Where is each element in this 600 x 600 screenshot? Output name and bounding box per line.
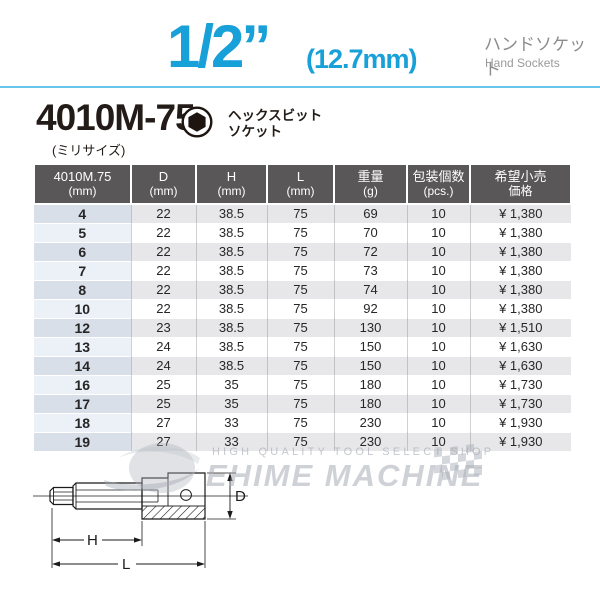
column-header: H(mm) — [196, 164, 267, 204]
size-cell: 5 — [34, 223, 131, 242]
spec-cell: 230 — [334, 432, 407, 451]
drive-size-mm: (12.7mm) — [306, 44, 417, 75]
spec-cell: 10 — [407, 375, 470, 394]
spec-cell: 69 — [334, 204, 407, 223]
spec-cell: 27 — [131, 432, 196, 451]
drive-size-heading: 1/2” — [167, 12, 268, 81]
spec-cell: 10 — [407, 299, 470, 318]
spec-cell: 38.5 — [196, 242, 267, 261]
spec-cell: ¥ 1,930 — [470, 432, 571, 451]
spec-cell: 10 — [407, 356, 470, 375]
spec-cell: 38.5 — [196, 261, 267, 280]
size-cell: 17 — [34, 394, 131, 413]
spec-cell: 75 — [267, 375, 334, 394]
dim-label-d: D — [235, 488, 246, 505]
table-row: 82238.5757410¥ 1,380 — [34, 280, 571, 299]
spec-cell: 38.5 — [196, 204, 267, 223]
spec-cell: 92 — [334, 299, 407, 318]
spec-table-header-row: 4010M.75(mm)D(mm)H(mm)L(mm)重量(g)包装個数(pcs… — [34, 164, 571, 204]
table-row: 102238.5759210¥ 1,380 — [34, 299, 571, 318]
column-header: 包装個数(pcs.) — [407, 164, 470, 204]
spec-cell: ¥ 1,730 — [470, 375, 571, 394]
spec-cell: ¥ 1,380 — [470, 242, 571, 261]
dim-label-h: H — [87, 532, 98, 549]
size-cell: 16 — [34, 375, 131, 394]
spec-cell: ¥ 1,510 — [470, 318, 571, 337]
spec-cell: 150 — [334, 356, 407, 375]
dimension-drawing: D H L — [30, 462, 265, 592]
size-cell: 13 — [34, 337, 131, 356]
size-cell: 6 — [34, 242, 131, 261]
spec-cell: ¥ 1,630 — [470, 337, 571, 356]
spec-cell: 35 — [196, 394, 267, 413]
spec-cell: 180 — [334, 375, 407, 394]
spec-cell: 75 — [267, 394, 334, 413]
spec-cell: 10 — [407, 280, 470, 299]
table-row: 52238.5757010¥ 1,380 — [34, 223, 571, 242]
spec-cell: 38.5 — [196, 299, 267, 318]
spec-cell: 25 — [131, 394, 196, 413]
spec-cell: ¥ 1,930 — [470, 413, 571, 432]
table-row: 1927337523010¥ 1,930 — [34, 432, 571, 451]
table-row: 72238.5757310¥ 1,380 — [34, 261, 571, 280]
spec-cell: ¥ 1,380 — [470, 299, 571, 318]
spec-cell: 22 — [131, 223, 196, 242]
size-cell: 19 — [34, 432, 131, 451]
column-header: 4010M.75(mm) — [34, 164, 131, 204]
spec-cell: 75 — [267, 318, 334, 337]
model-number: 4010M-75 — [36, 97, 195, 139]
spec-cell: 75 — [267, 432, 334, 451]
spec-cell: 72 — [334, 242, 407, 261]
spec-cell: 24 — [131, 337, 196, 356]
spec-cell: 33 — [196, 413, 267, 432]
size-cell: 4 — [34, 204, 131, 223]
spec-cell: 27 — [131, 413, 196, 432]
spec-cell: 10 — [407, 242, 470, 261]
header-divider — [0, 86, 600, 88]
table-row: 1725357518010¥ 1,730 — [34, 394, 571, 413]
product-type-line2: ソケット — [228, 124, 322, 140]
spec-cell: ¥ 1,380 — [470, 204, 571, 223]
spec-table: 4010M.75(mm)D(mm)H(mm)L(mm)重量(g)包装個数(pcs… — [33, 163, 572, 451]
model-size-note: (ミリサイズ) — [52, 140, 125, 159]
spec-cell: 25 — [131, 375, 196, 394]
column-header: 重量(g) — [334, 164, 407, 204]
spec-cell: 35 — [196, 375, 267, 394]
spec-cell: 10 — [407, 337, 470, 356]
table-row: 62238.5757210¥ 1,380 — [34, 242, 571, 261]
spec-cell: 74 — [334, 280, 407, 299]
category-title-jp: ハンドソケット — [484, 30, 600, 80]
spec-cell: ¥ 1,380 — [470, 261, 571, 280]
spec-cell: 150 — [334, 337, 407, 356]
spec-cell: 10 — [407, 223, 470, 242]
spec-cell: 75 — [267, 261, 334, 280]
spec-cell: 22 — [131, 261, 196, 280]
spec-cell: ¥ 1,380 — [470, 223, 571, 242]
spec-cell: 22 — [131, 280, 196, 299]
spec-cell: ¥ 1,380 — [470, 280, 571, 299]
spec-cell: 22 — [131, 204, 196, 223]
column-header: D(mm) — [131, 164, 196, 204]
spec-cell: 38.5 — [196, 337, 267, 356]
table-row: 132438.57515010¥ 1,630 — [34, 337, 571, 356]
size-cell: 10 — [34, 299, 131, 318]
spec-cell: 38.5 — [196, 280, 267, 299]
spec-cell: ¥ 1,630 — [470, 356, 571, 375]
spec-cell: 38.5 — [196, 318, 267, 337]
size-cell: 14 — [34, 356, 131, 375]
size-cell: 18 — [34, 413, 131, 432]
table-row: 1625357518010¥ 1,730 — [34, 375, 571, 394]
spec-cell: 10 — [407, 318, 470, 337]
spec-cell: 10 — [407, 261, 470, 280]
spec-cell: 75 — [267, 413, 334, 432]
spec-cell: 73 — [334, 261, 407, 280]
spec-cell: 180 — [334, 394, 407, 413]
spec-cell: 75 — [267, 280, 334, 299]
spec-cell: 22 — [131, 299, 196, 318]
size-cell: 7 — [34, 261, 131, 280]
spec-cell: 38.5 — [196, 356, 267, 375]
spec-cell: 75 — [267, 356, 334, 375]
spec-cell: 10 — [407, 413, 470, 432]
spec-cell: 24 — [131, 356, 196, 375]
table-row: 1827337523010¥ 1,930 — [34, 413, 571, 432]
spec-cell: 38.5 — [196, 223, 267, 242]
spec-cell: 75 — [267, 337, 334, 356]
spec-cell: 230 — [334, 413, 407, 432]
spec-cell: ¥ 1,730 — [470, 394, 571, 413]
product-type-line1: ヘックスビット — [228, 108, 322, 124]
spec-cell: 23 — [131, 318, 196, 337]
spec-table-body: 42238.5756910¥ 1,38052238.5757010¥ 1,380… — [34, 204, 571, 451]
spec-cell: 22 — [131, 242, 196, 261]
hex-bit-icon — [181, 106, 213, 138]
size-cell: 8 — [34, 280, 131, 299]
category-title-en: Hand Sockets — [485, 56, 560, 70]
spec-cell: 10 — [407, 204, 470, 223]
spec-cell: 33 — [196, 432, 267, 451]
spec-cell: 75 — [267, 223, 334, 242]
column-header: 希望小売価格 — [470, 164, 571, 204]
table-row: 122338.57513010¥ 1,510 — [34, 318, 571, 337]
spec-cell: 10 — [407, 394, 470, 413]
catalog-page: 1/2” (12.7mm) ハンドソケット Hand Sockets 4010M… — [0, 0, 600, 600]
column-header: L(mm) — [267, 164, 334, 204]
spec-cell: 10 — [407, 432, 470, 451]
spec-cell: 130 — [334, 318, 407, 337]
table-row: 142438.57515010¥ 1,630 — [34, 356, 571, 375]
table-row: 42238.5756910¥ 1,380 — [34, 204, 571, 223]
product-type-label: ヘックスビット ソケット — [228, 108, 322, 140]
size-cell: 12 — [34, 318, 131, 337]
spec-cell: 75 — [267, 299, 334, 318]
spec-cell: 75 — [267, 242, 334, 261]
spec-cell: 75 — [267, 204, 334, 223]
spec-cell: 70 — [334, 223, 407, 242]
dim-label-l: L — [122, 556, 130, 573]
